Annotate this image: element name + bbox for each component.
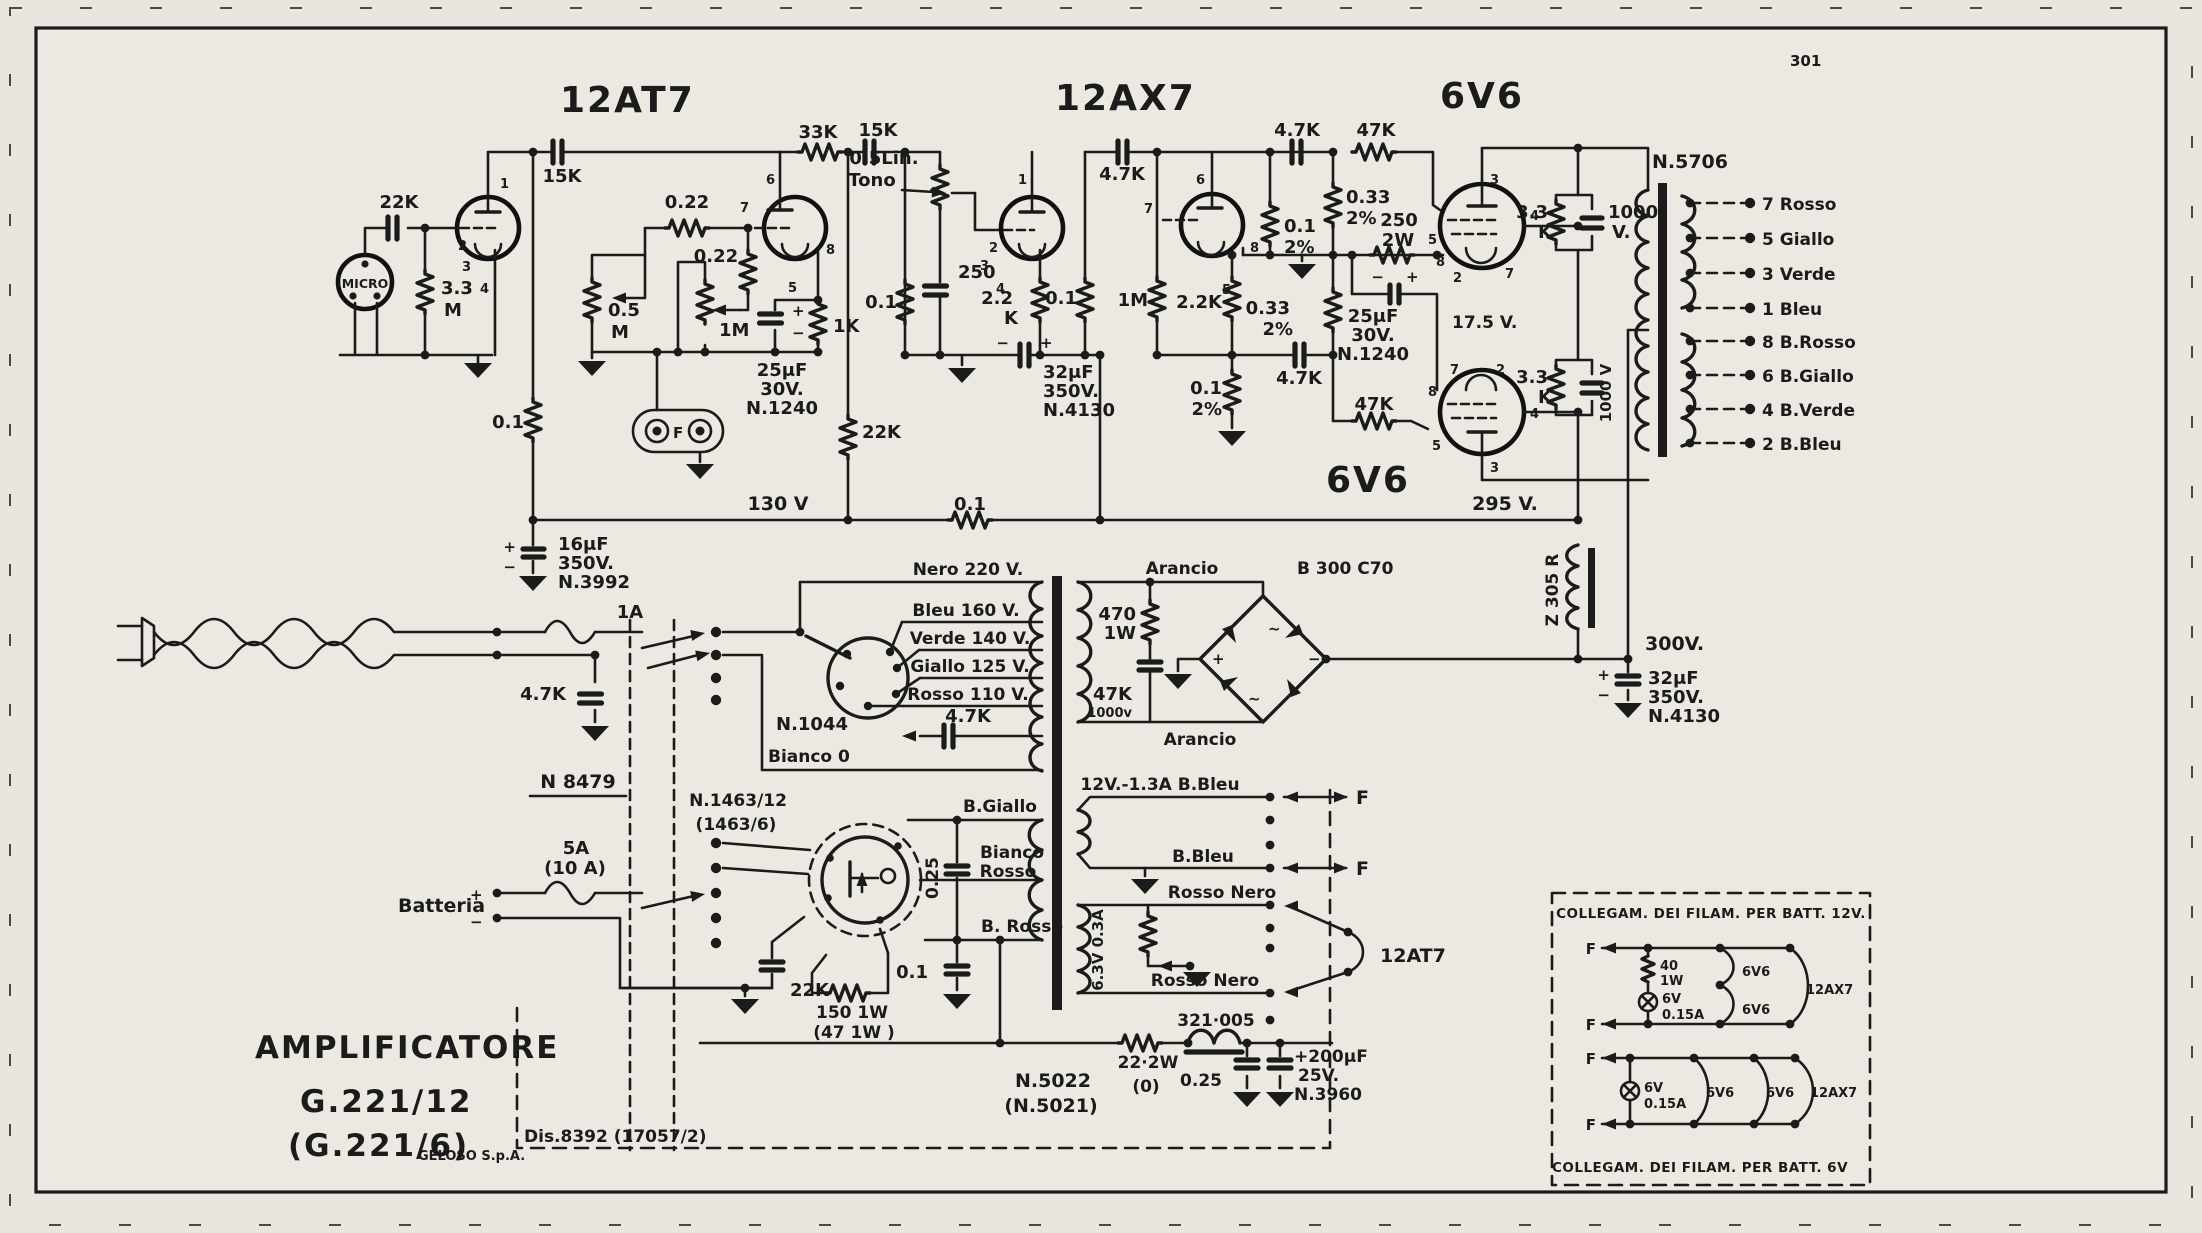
res-3.3m-unit: M [444, 300, 462, 321]
cap-32b-plus: + [1597, 666, 1610, 684]
cap-0.25b-label: 0.25 [1180, 1071, 1222, 1091]
lamp2-v: 6V [1644, 1081, 1663, 1096]
pin-5: 5 [788, 281, 797, 296]
fil-6v6-b1: 6V6 [1706, 1086, 1734, 1101]
cap-25b-1: 25μF [1348, 306, 1399, 327]
pin-6c: 6 [1196, 173, 1205, 188]
res-47k-top-label: 47K [1357, 120, 1397, 141]
cap-16uf-b: 350V. [558, 553, 614, 574]
terminal-1-bleu: 1 Bleu [1762, 300, 1822, 320]
company-label: GELOSO S.p.A. [418, 1149, 525, 1164]
cap-25b-plus: + [1406, 268, 1419, 286]
cap-25uf-a3: N.1240 [746, 398, 818, 419]
cap-32uf-plus: + [1040, 334, 1053, 352]
cap-47k-hv: 47K [1093, 684, 1133, 705]
terminal-4-bverde: 4 B.Verde [1762, 401, 1855, 421]
pin-2b: 2 [989, 241, 998, 256]
cap-25b-3: N.1240 [1337, 344, 1409, 365]
cap-22k-label: 22K [380, 192, 420, 213]
bianco-0-label: Bianco 0 [768, 747, 850, 767]
res-0.22b-label: 0.22 [694, 246, 738, 267]
pin-3: 3 [462, 260, 471, 275]
vibrator-n1463-label: N.1463/12 [689, 791, 787, 811]
cap-16uf-a: 16μF [558, 534, 609, 555]
cap-1000v-b: 1000 V [1597, 363, 1615, 422]
bracket-12at7-label: 12AT7 [1380, 945, 1446, 967]
res-0.1b-label: 0.1 [1045, 288, 1077, 309]
choke-z305r-label: Z 305 R [1543, 554, 1563, 627]
jack-f-label: F [673, 424, 683, 442]
res-2.2k-label: 2.2 [981, 288, 1013, 309]
res-0.33b-pct: 2% [1262, 319, 1293, 340]
cap-25b-minus: − [1371, 268, 1384, 286]
res-0.33a-label: 0.33 [1346, 187, 1390, 208]
lamp1-a: 0.15A [1662, 1008, 1704, 1023]
cap-32b-minus: − [1597, 686, 1610, 704]
f-6v-bot: F [1586, 1116, 1596, 1134]
res-22k-drop-label: 22K [862, 422, 902, 443]
n5022-label: N.5022 [1015, 1070, 1091, 1092]
schematic-page: 301 12AT7 MICRO 22K 3.3 M 1 2 3 4 15K 0.… [0, 0, 2202, 1233]
res-150-label: 150 1W [816, 1003, 888, 1023]
cap-15k-label: 15K [543, 166, 583, 187]
rossonero-1: Rosso Nero [1168, 883, 1276, 903]
f-12v-top: F [1586, 940, 1596, 958]
tap-giallo: Giallo 125 V. [910, 657, 1029, 677]
rail-300v-label: 300V. [1645, 633, 1704, 655]
res-3.3k-a: 3.3 [1516, 202, 1548, 223]
cap-1000v-a: 1000 [1608, 202, 1658, 223]
winding-6.3v-label: 6.3V 0.3A [1089, 909, 1107, 991]
res-40-unit: 1W [1660, 974, 1683, 989]
terminal-7-rosso: 7 Rosso [1762, 195, 1836, 215]
bbleu-label: B.Bleu [1172, 847, 1234, 867]
title-model-12: G.221/12 [300, 1084, 472, 1120]
pin-4: 4 [480, 282, 489, 297]
res-0.1-feed-label: 0.1 [492, 412, 524, 433]
res-2.2k-unit: K [1004, 308, 1019, 329]
cap-250-label: 250 [958, 262, 996, 283]
pin-2-v3: 2 [1453, 271, 1462, 286]
res-22-2w-label: 22·2W [1118, 1053, 1179, 1073]
lamp2-a: 0.15A [1644, 1097, 1686, 1112]
pin-7-v3: 7 [1505, 267, 1514, 282]
pin-3-v3: 3 [1490, 173, 1499, 188]
res-22-0-label: (0) [1132, 1077, 1159, 1097]
vibrator-n1463-alt: (1463/6) [696, 815, 777, 835]
res-0.33a-pct: 2% [1346, 208, 1377, 229]
fil-12ax7-b: 12AX7 [1810, 1086, 1857, 1101]
n8479-label: N 8479 [540, 771, 615, 793]
pin-1: 1 [500, 177, 509, 192]
batt-plus: + [470, 886, 483, 904]
filament-title-12v: COLLEGAM. DEI FILAM. PER BATT. 12V. [1556, 906, 1866, 922]
cap-32b-a: 32μF [1648, 668, 1699, 689]
biancorosso-b: Rosso [980, 862, 1037, 882]
tube-label-12ax7: 12AX7 [1055, 78, 1196, 119]
pin-8-v3: 8 [1436, 255, 1445, 270]
res-250-unit: 2W [1382, 230, 1415, 251]
f-12v-bot: F [1586, 1016, 1596, 1034]
fuse-5a-label: 5A [563, 838, 590, 859]
tono-pot-label: 0.5Lin. [849, 148, 918, 169]
cap-0.1-vib: 0.1 [896, 962, 928, 983]
res-2.2k-b-label: 2.2K [1176, 292, 1223, 313]
fil-6v6-a2: 6V6 [1742, 1003, 1770, 1018]
res-470-label: 470 [1098, 604, 1136, 625]
tap-bleu: Bleu 160 V. [912, 601, 1019, 621]
cap-25b-2: 30V. [1351, 325, 1395, 346]
cap-16uf-c: N.3992 [558, 572, 630, 593]
cap-47k-hv-v: 1000v [1087, 706, 1132, 721]
pin-4-v4: 4 [1530, 407, 1539, 422]
res-0.1c-pct: 2% [1191, 399, 1222, 420]
cap-22k-vib: 22K [790, 980, 830, 1001]
cap-1000v-a-unit: V. [1612, 222, 1630, 243]
terminal-2-bbleu: 2 B.Bleu [1762, 435, 1842, 455]
terminal-6-bgiallo: 6 B.Giallo [1762, 367, 1854, 387]
res-150-alt: (47 1W ) [813, 1023, 895, 1043]
pin-6: 6 [766, 173, 775, 188]
res-3.3k-a-unit: K [1538, 222, 1553, 243]
res-0.1-grid-label: 0.1 [865, 292, 897, 313]
fuse-5a-alt: (10 A) [544, 858, 606, 879]
cap-15k2-label: 15K [859, 120, 899, 141]
pin-3-v4: 3 [1490, 461, 1499, 476]
lamp1-v: 6V [1662, 992, 1681, 1007]
rectifier-model: B 300 C70 [1297, 559, 1394, 579]
selector-n1044-label: N.1044 [776, 714, 848, 735]
cap-32b-b: 350V. [1648, 687, 1704, 708]
pin-3b: 3 [980, 259, 989, 274]
cap-0.25-vib: 0.25 [923, 857, 943, 899]
transformer-n5706-label: N.5706 [1652, 151, 1728, 173]
tap-verde: Verde 140 V. [910, 629, 1031, 649]
pin-2-v4: 2 [1496, 363, 1505, 378]
terminal-8-brosso: 8 B.Rosso [1762, 333, 1856, 353]
pin-5-v3: 5 [1428, 233, 1437, 248]
pin-7: 7 [740, 201, 749, 216]
filament-title-6v: COLLEGAM. DEI FILAM. PER BATT. 6V [1552, 1160, 1848, 1176]
cap-25uf-minus: − [792, 324, 805, 342]
cap-4.7k-sel: 4.7K [945, 706, 992, 727]
cap-4.7k-top-label: 4.7K [1274, 120, 1321, 141]
cap-25uf-a1: 25μF [757, 360, 808, 381]
page-number: 301 [1790, 52, 1821, 70]
cap-200uf-c: N.3960 [1294, 1085, 1362, 1105]
res-40-label: 40 [1660, 959, 1678, 974]
pin-1b: 1 [1018, 173, 1027, 188]
cap-16uf-plus: + [503, 538, 516, 556]
res-250-label: 250 [1380, 210, 1418, 231]
cap-32uf-minus: − [996, 334, 1009, 352]
fil-6v6-b2: 6V6 [1766, 1086, 1794, 1101]
cap-16uf-minus: − [503, 558, 516, 576]
tono-pot-sub: Tono [848, 170, 895, 191]
choke-321-label: 321·005 [1177, 1011, 1254, 1031]
tap-rosso: Rosso 110 V. [907, 685, 1028, 705]
res-470-unit: 1W [1104, 623, 1137, 644]
pot-0.5m-label: 0.5 [608, 300, 640, 321]
res-3.3k-b-unit: K [1538, 387, 1553, 408]
bridge-ac1: ~ [1268, 620, 1281, 638]
arancio-top-label: Arancio [1146, 559, 1219, 579]
pin-8-v4: 8 [1428, 385, 1437, 400]
cap-4.7k-lo-label: 4.7K [1276, 368, 1323, 389]
res-1m-label: 1M [1118, 290, 1148, 311]
terminal-3-verde: 3 Verde [1762, 265, 1836, 285]
title-amplificatore: AMPLIFICATORE [255, 1030, 559, 1066]
res-0.33b-label: 0.33 [1246, 298, 1290, 319]
pot-1m-label: 1M [719, 320, 749, 341]
fil-12ax7-a: 12AX7 [1806, 983, 1853, 998]
tube-label-12at7: 12AT7 [560, 80, 695, 121]
res-0.1c-label: 0.1 [1190, 378, 1222, 399]
cap-25uf-a2: 30V. [760, 379, 804, 400]
n5022-alt: (N.5021) [1004, 1095, 1097, 1117]
res-47k-lo-label: 47K [1355, 394, 1395, 415]
pot-0.5m-unit: M [611, 322, 629, 343]
cap-25uf-plus: + [792, 302, 805, 320]
rail-295v-label: 295 V. [1472, 493, 1538, 515]
f-label-1: F [1356, 787, 1369, 809]
res-0.1-rail: 0.1 [954, 494, 986, 515]
cap-4.7k-mains: 4.7K [520, 684, 567, 705]
res-0.1pct-pct: 2% [1284, 237, 1315, 258]
pin-7c: 7 [1144, 202, 1153, 217]
tube-label-6v6-bottom: 6V6 [1326, 460, 1410, 501]
f-6v-top: F [1586, 1050, 1596, 1068]
cap-32b-c: N.4130 [1648, 706, 1720, 727]
bridge-plus: + [1212, 650, 1225, 668]
rail-130v-label: 130 V [748, 493, 809, 515]
tap-nero: Nero 220 V. [913, 560, 1024, 580]
cap-200uf-b: 25V. [1298, 1066, 1339, 1086]
biancorosso-a: Bianco [980, 843, 1044, 863]
cap-32uf-a: 32μF [1043, 362, 1094, 383]
f-label-2: F [1356, 858, 1369, 880]
res-33k-label: 33K [799, 122, 839, 143]
res-3.3m-label: 3.3 [441, 278, 473, 299]
res-3.3k-b: 3.3 [1516, 367, 1548, 388]
bridge-ac2: ~ [1248, 690, 1261, 708]
pin-7-v4: 7 [1450, 363, 1459, 378]
terminal-5-giallo: 5 Giallo [1762, 230, 1834, 250]
schematic-canvas: 301 12AT7 MICRO 22K 3.3 M 1 2 3 4 15K 0.… [0, 0, 2202, 1233]
cap-32uf-b: 350V. [1043, 381, 1099, 402]
pin-8: 8 [826, 243, 835, 258]
pin-5-v4: 5 [1432, 439, 1441, 454]
winding-12v-label: 12V.-1.3A B.Bleu [1080, 775, 1239, 795]
brosso-label: B. Rosso [981, 917, 1063, 937]
res-0.1pct-label: 0.1 [1284, 216, 1316, 237]
cap-4.7k-label: 4.7K [1099, 164, 1146, 185]
fil-6v6-a1: 6V6 [1742, 965, 1770, 980]
arancio-bottom-label: Arancio [1164, 730, 1237, 750]
pin-2: 2 [458, 239, 467, 254]
bgiallo-label: B.Giallo [963, 797, 1037, 817]
dis-8392-label: Dis.8392 (17057/2) [524, 1127, 706, 1147]
mic-label: MICRO [342, 276, 389, 291]
batt-minus: − [470, 913, 483, 931]
cap-32uf-c: N.4130 [1043, 400, 1115, 421]
bias-17.5v-label: 17.5 V. [1452, 313, 1517, 333]
res-0.22a-label: 0.22 [665, 192, 709, 213]
bridge-minus: − [1308, 650, 1321, 668]
tube-label-6v6-top: 6V6 [1440, 76, 1524, 117]
